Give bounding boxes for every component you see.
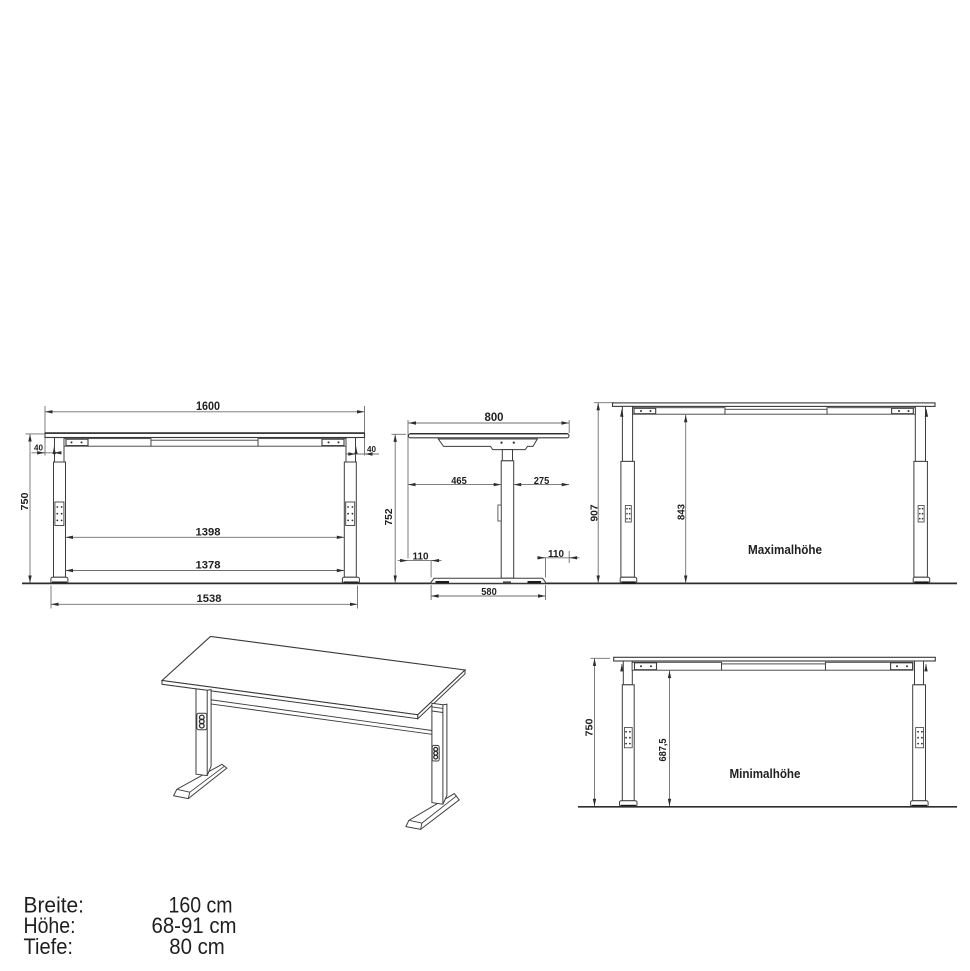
svg-text:1600: 1600: [196, 399, 220, 413]
svg-text:907: 907: [588, 504, 600, 521]
svg-text:80 cm: 80 cm: [169, 934, 225, 959]
svg-text:110: 110: [548, 549, 564, 560]
svg-text:1398: 1398: [196, 526, 221, 538]
svg-text:Maximalhöhe: Maximalhöhe: [748, 543, 822, 557]
svg-text:750: 750: [583, 718, 595, 736]
svg-text:40: 40: [34, 442, 43, 452]
svg-text:Minimalhöhe: Minimalhöhe: [730, 767, 801, 781]
svg-text:1378: 1378: [196, 560, 221, 572]
svg-text:750: 750: [19, 492, 31, 510]
svg-text:843: 843: [676, 504, 688, 520]
svg-text:1538: 1538: [197, 593, 222, 605]
svg-text:275: 275: [534, 476, 550, 487]
svg-text:Tiefe:: Tiefe:: [24, 934, 74, 959]
svg-text:580: 580: [481, 587, 497, 598]
svg-text:40: 40: [367, 444, 376, 454]
svg-text:800: 800: [485, 410, 504, 424]
svg-text:110: 110: [413, 551, 429, 562]
svg-text:687,5: 687,5: [658, 738, 669, 761]
svg-text:465: 465: [451, 476, 467, 487]
svg-text:752: 752: [383, 508, 395, 525]
